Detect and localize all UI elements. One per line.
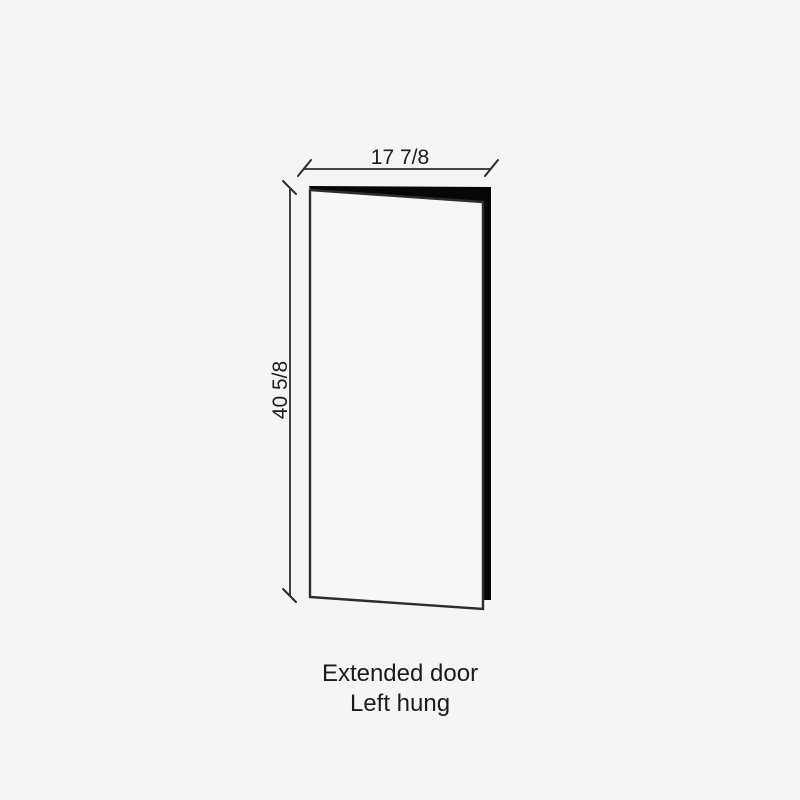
door-diagram-canvas: 17 7/8 40 5/8 Extended door Left hung <box>0 0 800 800</box>
width-dimension-tick-right <box>485 160 498 176</box>
door-front-face <box>310 190 483 609</box>
height-dimension-label: 40 5/8 <box>269 361 292 419</box>
door-diagram: 17 7/8 40 5/8 Extended door Left hung <box>0 0 800 800</box>
caption-line-1: Extended door <box>322 660 478 687</box>
height-dimension: 40 5/8 <box>269 181 296 602</box>
width-dimension-label: 17 7/8 <box>371 146 429 169</box>
caption-line-2: Left hung <box>350 690 450 717</box>
caption: Extended door Left hung <box>322 660 478 717</box>
width-dimension-tick-left <box>298 160 311 176</box>
width-dimension: 17 7/8 <box>298 146 498 176</box>
